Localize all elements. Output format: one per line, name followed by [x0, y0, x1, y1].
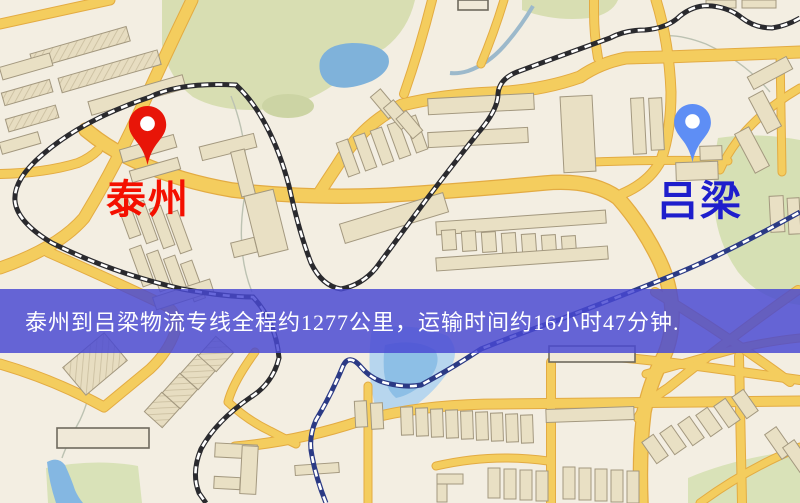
route-info-text: 泰州到吕梁物流专线全程约1277公里，运输时间约16小时47分钟. — [0, 305, 680, 337]
pin-inner-dot — [140, 116, 155, 131]
destination-pin-icon[interactable] — [670, 102, 715, 164]
map-canvas[interactable] — [0, 0, 800, 503]
destination-city-label: 吕梁 — [644, 181, 756, 222]
origin-pin-icon[interactable] — [125, 104, 170, 167]
map-stage: 泰州 吕梁 泰州到吕梁物流专线全程约1277公里，运输时间约16小时47分钟. — [0, 0, 800, 503]
pin-inner-dot — [685, 114, 700, 129]
route-info-banner: 泰州到吕梁物流专线全程约1277公里，运输时间约16小时47分钟. — [0, 289, 800, 353]
origin-city-label: 泰州 — [94, 180, 202, 220]
